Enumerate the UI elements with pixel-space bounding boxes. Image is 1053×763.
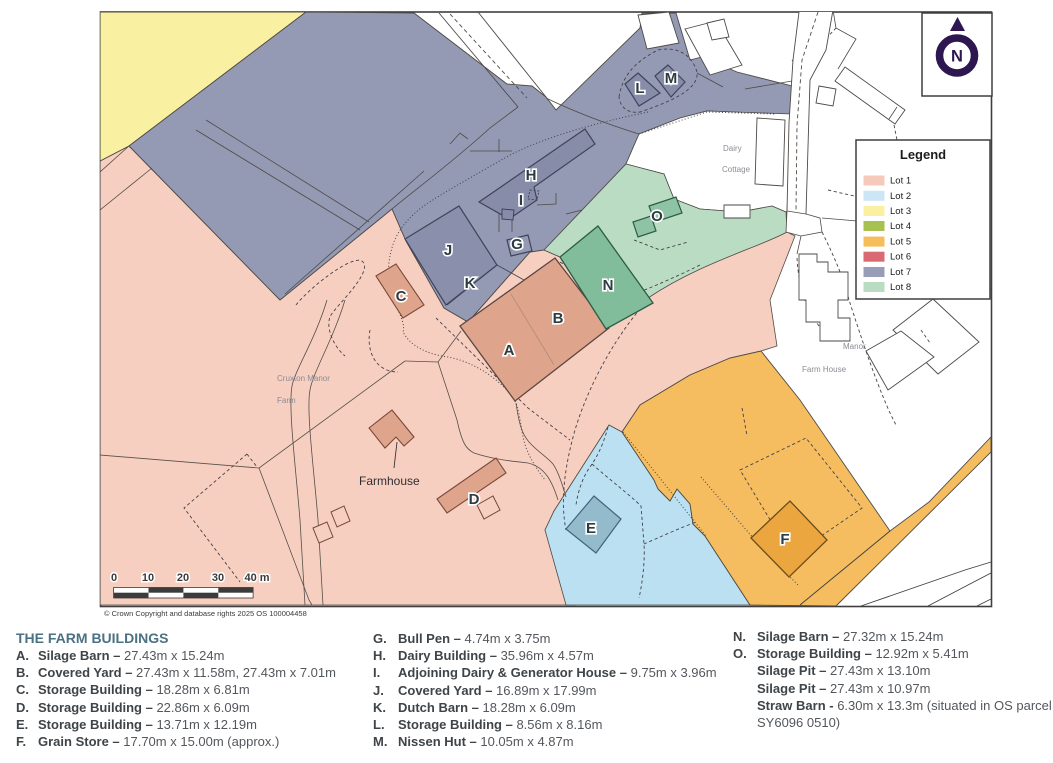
svg-text:Lot 3: Lot 3 — [890, 206, 911, 217]
svg-text:20: 20 — [177, 572, 189, 584]
svg-text:Farmhouse: Farmhouse — [359, 474, 420, 488]
svg-text:L: L — [635, 80, 644, 97]
svg-text:Lot 2: Lot 2 — [890, 191, 911, 202]
svg-text:Cruxton Manor: Cruxton Manor — [277, 374, 330, 383]
svg-text:10: 10 — [142, 572, 154, 584]
svg-text:© Crown Copyright and database: © Crown Copyright and database rights 20… — [104, 609, 307, 618]
svg-text:Cottage: Cottage — [722, 165, 751, 174]
svg-text:M: M — [665, 70, 678, 87]
svg-text:Lot 6: Lot 6 — [890, 252, 911, 263]
svg-text:Farm House: Farm House — [802, 365, 847, 374]
svg-text:Dairy: Dairy — [723, 144, 742, 153]
svg-text:F: F — [780, 531, 789, 548]
svg-text:40 m: 40 m — [244, 572, 269, 584]
svg-text:Lot 5: Lot 5 — [890, 237, 911, 248]
svg-text:B: B — [553, 310, 564, 327]
svg-text:0: 0 — [111, 572, 117, 584]
svg-text:N: N — [951, 48, 963, 66]
svg-text:Farm: Farm — [277, 396, 296, 405]
svg-text:K: K — [465, 275, 476, 292]
svg-text:A: A — [504, 342, 515, 359]
svg-text:Lot 8: Lot 8 — [890, 282, 911, 293]
svg-text:Lot 1: Lot 1 — [890, 176, 911, 187]
svg-text:E: E — [586, 520, 596, 537]
svg-text:I: I — [519, 192, 523, 209]
svg-text:J: J — [444, 242, 452, 259]
svg-text:N: N — [603, 277, 614, 294]
svg-text:G: G — [511, 236, 523, 253]
svg-text:30: 30 — [212, 572, 224, 584]
svg-text:Legend: Legend — [900, 147, 946, 162]
svg-text:O: O — [651, 208, 663, 225]
svg-text:D: D — [469, 491, 480, 508]
svg-text:Lot 7: Lot 7 — [890, 267, 911, 278]
svg-text:H: H — [526, 167, 537, 184]
svg-text:Lot 4: Lot 4 — [890, 221, 911, 232]
svg-text:C: C — [396, 288, 407, 305]
svg-text:Manor: Manor — [843, 342, 866, 351]
